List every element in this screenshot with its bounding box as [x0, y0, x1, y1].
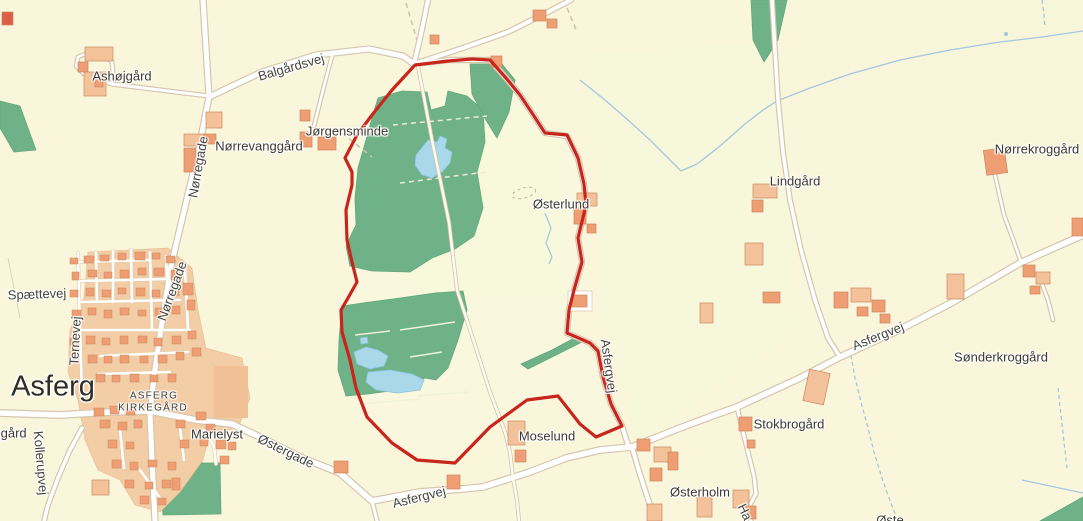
farm-building — [947, 274, 964, 299]
street — [131, 250, 132, 302]
farm-building — [1030, 286, 1040, 294]
farm-building — [78, 62, 88, 72]
town-building — [118, 288, 126, 294]
road-ashojgard-lane — [112, 84, 209, 96]
town-building — [158, 498, 166, 505]
town-building — [126, 408, 135, 415]
forest-area — [0, 101, 36, 152]
farm-building — [857, 307, 868, 316]
town-building — [100, 255, 109, 261]
town-building — [166, 256, 175, 263]
town-building — [168, 462, 176, 470]
farm-building — [1036, 272, 1050, 284]
farm-building — [880, 314, 890, 323]
farm-building — [733, 490, 749, 508]
town-building — [176, 420, 185, 428]
town-building — [88, 308, 96, 315]
farm-building — [753, 184, 777, 198]
town-building — [118, 253, 126, 260]
town-building — [130, 462, 138, 470]
town-building — [125, 480, 134, 488]
town-building — [70, 290, 78, 297]
map-canvas — [0, 0, 1083, 521]
track-dashed — [567, 8, 577, 32]
farm-building — [447, 475, 460, 489]
town-building — [152, 253, 160, 259]
town-building — [72, 310, 81, 318]
town-building — [86, 288, 94, 296]
road-north-road — [414, 0, 428, 64]
town-building — [152, 290, 160, 297]
town-building — [148, 460, 157, 467]
map-viewport[interactable]: AshøjgårdBalgårdsvejNørregadeNørregadeJø… — [0, 0, 1083, 521]
track-dashed — [406, 3, 417, 40]
town-building — [154, 338, 162, 346]
farm-building — [637, 439, 650, 451]
town-block — [214, 366, 248, 418]
farm-building — [547, 19, 557, 28]
town-building — [112, 375, 120, 382]
farm-building — [334, 461, 348, 473]
town-building — [70, 338, 78, 345]
town-building — [140, 356, 148, 363]
town-building — [216, 440, 226, 449]
town-building — [126, 442, 134, 449]
farm-building — [647, 504, 662, 521]
farm-building — [1072, 218, 1083, 236]
town-building — [120, 336, 128, 344]
farm-building — [184, 148, 196, 172]
farm-building — [851, 288, 871, 302]
town-building — [168, 374, 176, 382]
forest-area — [1040, 497, 1083, 521]
town-building — [88, 355, 97, 363]
town-building — [110, 406, 119, 414]
town-building — [138, 336, 147, 343]
town-building — [108, 440, 117, 448]
town-building — [172, 478, 180, 490]
town-building — [200, 438, 208, 446]
town-building — [120, 355, 129, 363]
town-building — [192, 348, 201, 356]
stream — [1022, 480, 1083, 493]
town-building — [171, 270, 179, 280]
town-building — [172, 306, 180, 314]
town-building — [206, 424, 215, 432]
town-building — [84, 256, 94, 263]
farm-building — [95, 80, 103, 87]
farm-building — [508, 421, 525, 445]
town-building — [94, 408, 104, 416]
town-building — [187, 300, 195, 310]
farm-building — [2, 12, 13, 25]
farm-building — [752, 200, 763, 212]
lake — [360, 337, 368, 344]
farm-building — [587, 224, 596, 233]
marsh-dot — [1004, 32, 1008, 36]
town-building — [120, 308, 129, 315]
town-building — [70, 258, 78, 264]
town-building — [104, 272, 112, 278]
town-building — [112, 460, 121, 468]
town-building — [118, 422, 127, 430]
farm-building — [763, 292, 780, 303]
town-building — [104, 310, 112, 318]
farm-building — [1023, 265, 1035, 277]
town-building — [134, 420, 142, 428]
farm-building — [700, 303, 713, 323]
farm-building — [430, 35, 439, 44]
farm-building — [747, 440, 755, 448]
road-norrekroggard-lane — [995, 175, 1021, 262]
town-building — [130, 374, 139, 382]
farm-building — [206, 112, 222, 128]
farm-building — [184, 134, 204, 146]
town-building — [102, 290, 111, 297]
farm-building — [533, 10, 546, 21]
farm-building — [668, 452, 678, 470]
farm-building — [85, 47, 113, 61]
farm-building — [204, 134, 216, 144]
town-building — [140, 496, 149, 504]
town-building — [136, 288, 145, 296]
town-building — [138, 310, 146, 316]
town-building — [188, 331, 196, 339]
farm-building — [983, 148, 1007, 176]
town-building — [172, 336, 181, 344]
ditch-dashed — [1058, 388, 1067, 468]
town-building — [150, 375, 158, 382]
town-building — [100, 420, 110, 428]
town-building — [102, 338, 110, 345]
ditch-dashed — [851, 355, 896, 516]
town-building — [183, 283, 193, 295]
farm-building — [745, 506, 756, 519]
town-building — [155, 308, 164, 316]
town-building — [96, 374, 105, 382]
town-building — [145, 482, 153, 489]
field-line — [8, 258, 20, 318]
town-building — [104, 356, 112, 363]
farm-building — [739, 417, 752, 431]
farm-building — [834, 292, 848, 308]
town-building — [154, 268, 164, 276]
farm-building — [92, 480, 109, 495]
town-building — [220, 456, 229, 464]
town-building — [228, 442, 236, 450]
town-building — [158, 355, 167, 363]
town-building — [170, 288, 179, 296]
town-building — [135, 252, 145, 260]
farm-building — [650, 468, 662, 481]
town-building — [88, 270, 97, 277]
town-building — [162, 480, 171, 488]
town-building — [196, 412, 206, 420]
farm-building — [572, 295, 587, 307]
farm-building — [745, 243, 763, 265]
farm-building — [697, 497, 712, 517]
farm-building — [300, 132, 312, 147]
town-building — [72, 272, 79, 280]
town-building — [180, 440, 189, 448]
farm-building — [515, 450, 526, 462]
farm-building — [300, 110, 310, 121]
town-building — [176, 352, 184, 360]
farm-building — [318, 137, 336, 150]
farm-building — [872, 300, 885, 312]
town-building — [86, 336, 95, 344]
town-building — [120, 270, 129, 278]
town-building — [138, 268, 146, 275]
road-jorgensminde-lane — [314, 56, 332, 126]
field-tint — [590, 40, 800, 440]
